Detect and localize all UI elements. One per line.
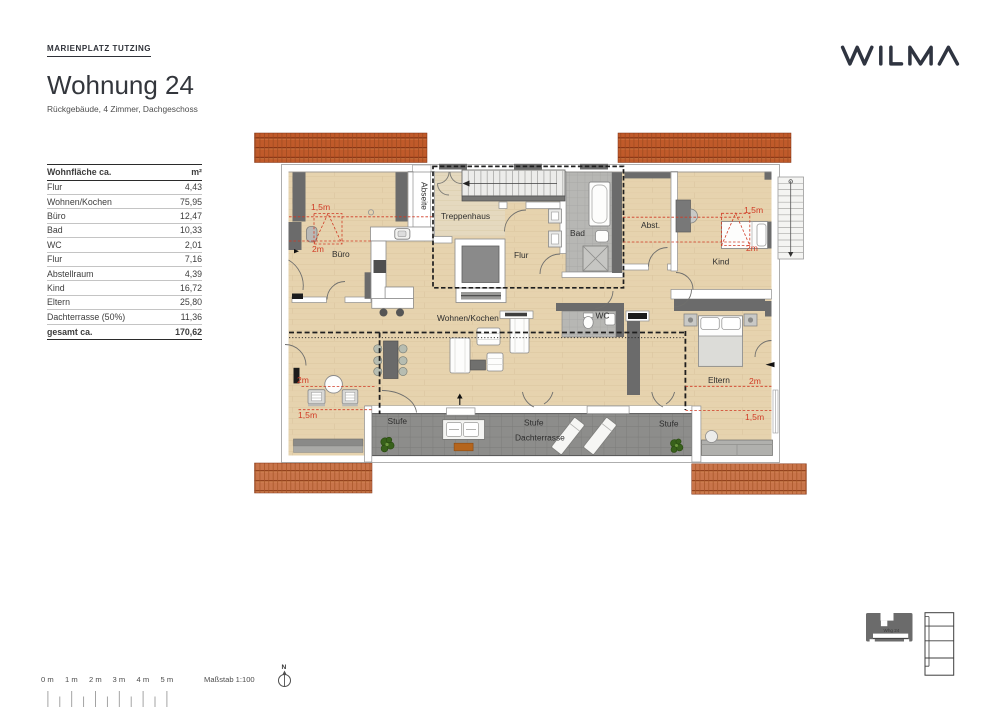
- svg-text:2 m: 2 m: [89, 675, 102, 684]
- svg-text:Stufe: Stufe: [524, 418, 544, 428]
- svg-text:Abseite: Abseite: [420, 182, 430, 210]
- svg-text:Büro: Büro: [332, 249, 350, 259]
- svg-text:2m: 2m: [746, 243, 758, 253]
- svg-text:Dachterrasse: Dachterrasse: [515, 433, 565, 443]
- svg-text:Eltern: Eltern: [708, 375, 730, 385]
- svg-text:N: N: [282, 664, 287, 671]
- svg-text:1,5m: 1,5m: [744, 205, 763, 215]
- svg-text:2m: 2m: [312, 244, 324, 254]
- svg-text:Flur: Flur: [514, 250, 529, 260]
- svg-text:5 m: 5 m: [161, 675, 174, 684]
- svg-text:1 m: 1 m: [65, 675, 78, 684]
- svg-text:2m: 2m: [749, 376, 761, 386]
- svg-text:1,5m: 1,5m: [745, 412, 764, 422]
- svg-text:Maßstab 1:100: Maßstab 1:100: [204, 675, 255, 684]
- svg-text:1,5m: 1,5m: [298, 410, 317, 420]
- svg-text:0 m: 0 m: [41, 675, 54, 684]
- svg-text:Bad: Bad: [570, 228, 585, 238]
- svg-text:Stufe: Stufe: [659, 419, 679, 429]
- svg-text:Wohnen/Kochen: Wohnen/Kochen: [437, 313, 499, 323]
- svg-text:3 m: 3 m: [113, 675, 126, 684]
- svg-text:4 m: 4 m: [137, 675, 150, 684]
- svg-text:2m: 2m: [297, 375, 309, 385]
- svg-text:Whg 24: Whg 24: [884, 628, 900, 633]
- svg-text:Abst.: Abst.: [641, 220, 660, 230]
- svg-text:Treppenhaus: Treppenhaus: [441, 211, 490, 221]
- svg-text:1,5m: 1,5m: [311, 202, 330, 212]
- svg-text:Kind: Kind: [713, 257, 730, 267]
- svg-text:Stufe: Stufe: [388, 416, 408, 426]
- svg-text:WC: WC: [596, 311, 610, 321]
